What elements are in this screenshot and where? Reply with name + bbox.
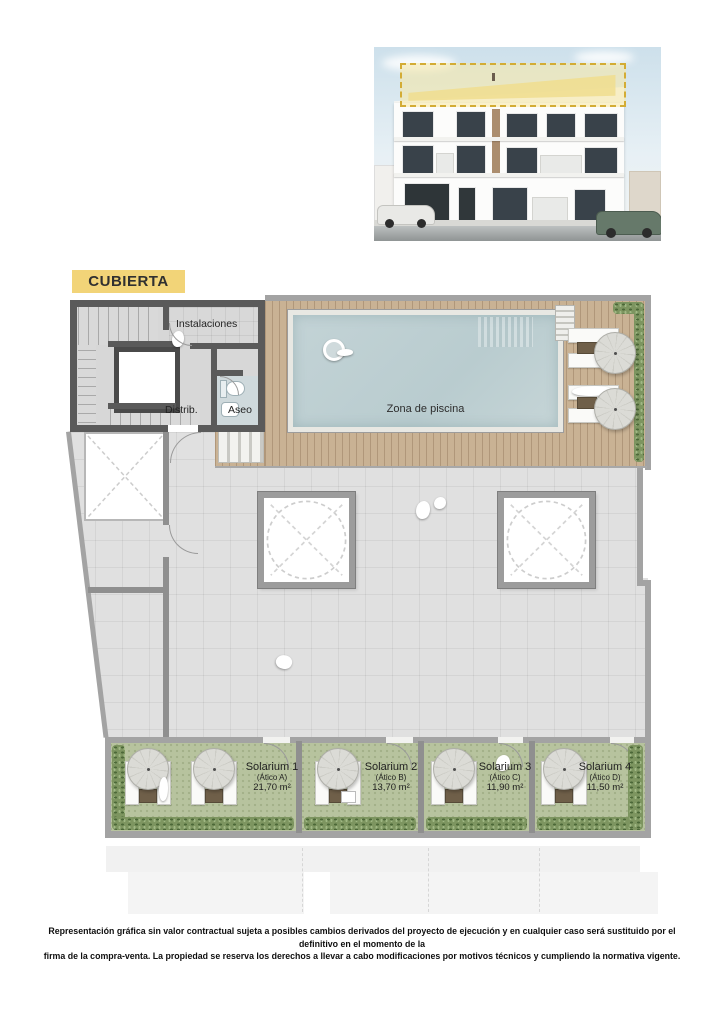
solarium-unit: (Ático A) [237, 773, 307, 782]
skylight-symbol [498, 492, 595, 588]
elevator-wall [108, 341, 176, 347]
solarium-name: Solarium 2 [356, 761, 426, 773]
lower-floor-shadow [106, 846, 640, 872]
window [402, 145, 434, 175]
swimmer-figure [337, 349, 353, 356]
window [584, 147, 618, 175]
floor-mat [341, 791, 356, 803]
hedge [426, 817, 527, 830]
hedge [112, 817, 294, 830]
car-wheel [642, 228, 652, 238]
solarium-label: Solarium 2 (Ático B) 13,70 m² [356, 761, 426, 793]
core-wall [198, 425, 265, 432]
staircase-upper-flight [78, 307, 158, 345]
door-opening [263, 737, 290, 743]
aseo-label: Aseo [228, 404, 252, 416]
core-wall [258, 300, 265, 432]
door-opening [498, 737, 523, 743]
solarium-area: 13,70 m² [356, 782, 426, 793]
balcony-railing [436, 153, 454, 175]
door-opening [610, 737, 634, 743]
pool-zone-label: Zona de piscina [293, 403, 558, 415]
window [402, 111, 434, 139]
solarium-area: 11,50 m² [572, 782, 638, 793]
distrib-label: Distrib. [165, 404, 198, 416]
projection-line [539, 848, 541, 912]
window [506, 113, 538, 139]
balcony-slab [394, 173, 624, 177]
window [546, 113, 576, 139]
core-wall [70, 300, 77, 432]
parasol-symbol [317, 748, 359, 790]
staircase-side-flight [78, 345, 96, 423]
pool-reflection [478, 317, 533, 347]
lower-floor-shadow [128, 872, 304, 914]
hedge [304, 817, 416, 830]
disclaimer: Representación gráfica sin valor contrac… [30, 925, 694, 963]
parasol-symbol [594, 332, 636, 374]
window [506, 147, 538, 175]
solarium-bottom-wall [105, 831, 648, 838]
window [456, 145, 486, 175]
page: CUBIERTA Zona de piscina [0, 0, 724, 1024]
outer-wall-top [265, 295, 651, 301]
door-opening [386, 737, 413, 743]
swimming-pool: Zona de piscina [288, 310, 563, 432]
solarium-area: 21,70 m² [237, 782, 307, 793]
solarium-unit: (Ático B) [356, 773, 426, 782]
core-wall [163, 300, 169, 330]
solarium-name: Solarium 1 [237, 761, 307, 773]
solarium-unit: (Ático D) [572, 773, 638, 782]
car-wheel [417, 219, 426, 228]
solarium-area: 11,90 m² [470, 782, 540, 793]
solarium-furniture [315, 751, 359, 809]
building-render [374, 47, 661, 241]
terrace-wall [88, 587, 169, 593]
solarium-left-wall [105, 737, 111, 838]
outer-wall-right-upper [637, 467, 643, 585]
projection-line [428, 848, 430, 912]
person-on-roof [492, 73, 495, 81]
skylight-symbol [258, 492, 355, 588]
car-wheel [606, 228, 616, 238]
balcony-slab [394, 137, 624, 141]
floor-plan: Zona de piscina [68, 295, 654, 843]
outer-wall-right-deck [645, 298, 651, 470]
disclaimer-line-1: Representación gráfica sin valor contrac… [30, 925, 694, 950]
balcony-railing [540, 155, 582, 175]
void-opening [84, 432, 166, 521]
core-wall [190, 343, 258, 349]
solarium-furniture [431, 751, 475, 809]
lower-floor-shadow [330, 872, 658, 914]
floor-title: CUBIERTA [88, 273, 168, 290]
solarium-furniture [191, 751, 235, 809]
parasol-symbol [594, 388, 636, 430]
deck-terrace-edge [215, 466, 647, 468]
solarium-furniture [125, 751, 169, 809]
core-wall [211, 349, 217, 432]
terrace-wall [163, 557, 169, 737]
solarium-name: Solarium 4 [572, 761, 638, 773]
solarium-label: Solarium 3 (Ático C) 11,90 m² [470, 761, 540, 793]
floor-title-badge: CUBIERTA [72, 270, 185, 293]
hedge [634, 302, 644, 462]
parasol-symbol [193, 748, 235, 790]
parasol-symbol [433, 748, 475, 790]
deck-lockers [218, 431, 264, 463]
solarium-name: Solarium 3 [470, 761, 540, 773]
disclaimer-line-2: firma de la compra-venta. La propiedad s… [30, 950, 694, 963]
outer-wall-right-lower [645, 583, 651, 838]
instalaciones-label: Instalaciones [176, 318, 237, 330]
roof-highlight-wedge [404, 67, 622, 103]
window [456, 111, 486, 139]
solarium-top-wall [105, 737, 648, 743]
terrace-wall [163, 432, 169, 525]
solarium-unit: (Ático C) [470, 773, 540, 782]
car-wheel [385, 219, 394, 228]
wood-pier [492, 109, 500, 175]
solarium-label: Solarium 1 (Ático A) 21,70 m² [237, 761, 307, 793]
window [492, 187, 528, 223]
roof-highlight-box [400, 63, 626, 107]
solarium-label: Solarium 4 (Ático D) 11,50 m² [572, 761, 638, 793]
core-wall [70, 425, 168, 432]
window [584, 113, 618, 139]
projection-line [302, 848, 304, 912]
